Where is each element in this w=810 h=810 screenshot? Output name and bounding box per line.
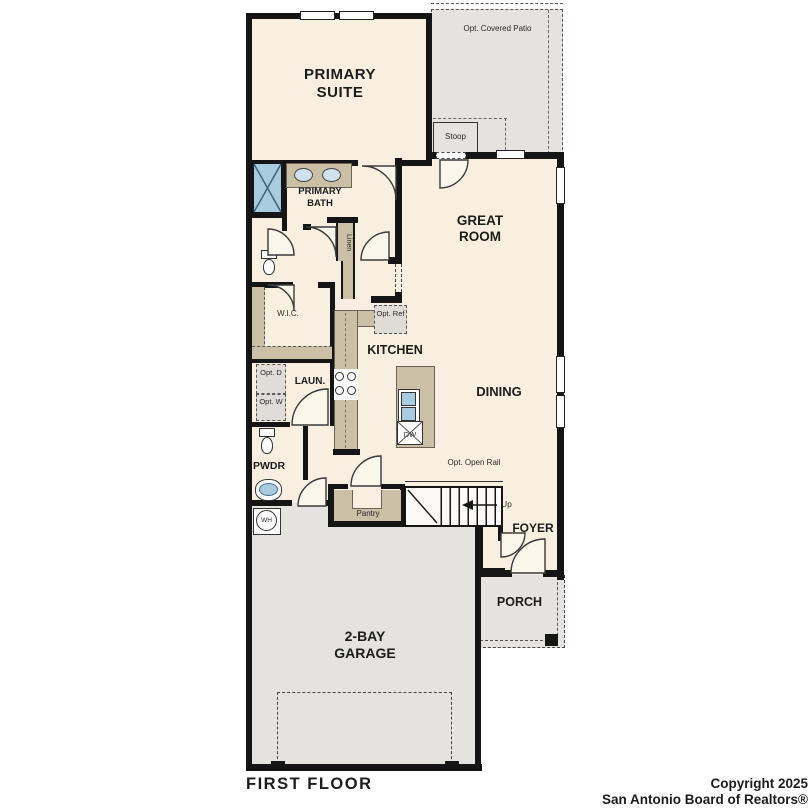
copyright-line2: San Antonio Board of Realtors® bbox=[602, 792, 808, 808]
window-suite-1 bbox=[300, 11, 335, 20]
label-primary-suite: PRIMARY SUITE bbox=[285, 66, 395, 103]
vanity-sink-icon-1 bbox=[294, 168, 313, 182]
burner-icon-2 bbox=[347, 372, 356, 381]
floor-plan: Opt. Ref DW Opt. D Opt. W WH Pantry Opt.… bbox=[0, 0, 810, 810]
patio-inner-dash bbox=[548, 10, 549, 154]
label-garage: 2-BAY GARAGE bbox=[324, 628, 406, 662]
wall-powder-right bbox=[303, 426, 308, 480]
burner-icon-3 bbox=[335, 386, 344, 395]
kitchen-counter-endcap bbox=[333, 449, 360, 455]
stoop-ext-dash-h bbox=[433, 118, 507, 119]
wall-hall-door-stub bbox=[388, 257, 396, 264]
wall-greatroom-left bbox=[395, 158, 402, 264]
wall-laundry-bottom bbox=[252, 422, 290, 427]
powder-toilet-tank-icon bbox=[259, 428, 275, 437]
patio-outer-dash bbox=[431, 3, 563, 4]
window-right-2 bbox=[556, 356, 565, 393]
cased-opening-dash bbox=[395, 264, 402, 292]
wall-pantry-top-a bbox=[328, 484, 348, 489]
label-primary-bath: PRIMARY BATH bbox=[289, 186, 351, 209]
copyright-line1: Copyright 2025 bbox=[602, 776, 808, 792]
label-kitchen: KITCHEN bbox=[360, 343, 430, 358]
wc-toilet-tank-icon bbox=[261, 250, 277, 259]
opt-open-rail-label: Opt. Open Rail bbox=[444, 458, 504, 468]
opt-dryer-label: Opt. D bbox=[257, 368, 285, 377]
water-heater-label: WH bbox=[256, 510, 277, 531]
label-laundry: LAUN. bbox=[290, 376, 330, 388]
label-linen: Linen bbox=[338, 228, 352, 258]
label-wic: W.I.C. bbox=[268, 309, 308, 319]
label-great-room: GREAT ROOM bbox=[440, 213, 520, 246]
wall-closet-left bbox=[478, 527, 483, 573]
island-sink-bowl-2 bbox=[401, 407, 416, 421]
wall-kitchen-top bbox=[371, 296, 402, 303]
wic-shelf-bottom bbox=[252, 346, 332, 359]
powder-toilet-bowl-icon bbox=[261, 437, 273, 454]
wc-toilet-bowl-icon bbox=[263, 259, 275, 275]
window-right-3 bbox=[556, 395, 565, 428]
garage-door-stub-left bbox=[271, 761, 285, 771]
wall-wc-right-stub bbox=[282, 213, 287, 231]
opt-ref-label: Opt. Ref bbox=[375, 309, 406, 318]
label-first-floor: FIRST FLOOR bbox=[246, 774, 386, 794]
staircase-landing bbox=[406, 488, 436, 525]
garage-door-dash bbox=[277, 692, 452, 764]
wall-left bbox=[246, 13, 252, 770]
burner-icon-1 bbox=[335, 372, 344, 381]
pantry-shelf-notch bbox=[352, 490, 382, 509]
stoop-door-opening bbox=[436, 152, 466, 159]
label-porch: PORCH bbox=[492, 595, 547, 610]
porch-post bbox=[545, 634, 558, 646]
burner-icon-4 bbox=[347, 386, 356, 395]
label-foyer: FOYER bbox=[509, 521, 557, 536]
garage-door-stub-right bbox=[445, 761, 459, 771]
wall-closet-right-stub bbox=[498, 527, 503, 541]
label-powder: PWDR bbox=[248, 460, 290, 473]
window-suite-2 bbox=[339, 11, 374, 20]
wall-bath-door-stub bbox=[303, 224, 311, 230]
stair-rail-line bbox=[405, 481, 503, 482]
shower-icon bbox=[252, 162, 283, 214]
window-right-1 bbox=[556, 167, 565, 204]
copyright: Copyright 2025 San Antonio Board of Real… bbox=[602, 776, 808, 807]
powder-sink-icon bbox=[259, 483, 278, 496]
wall-chase bbox=[341, 261, 355, 299]
label-stoop: Stoop bbox=[433, 132, 478, 142]
wall-front-a bbox=[478, 570, 512, 577]
label-covered-patio: Opt. Covered Patio bbox=[450, 24, 545, 34]
wall-suite-right bbox=[426, 13, 432, 166]
opt-washer-label: Opt. W bbox=[257, 397, 285, 406]
pantry-label: Pantry bbox=[342, 509, 394, 519]
vanity-sink-icon-2 bbox=[322, 168, 341, 182]
up-label: Up bbox=[501, 499, 521, 509]
wall-front-b bbox=[543, 570, 564, 577]
island-sink-bowl-1 bbox=[401, 392, 416, 406]
label-dining: DINING bbox=[470, 384, 528, 400]
dishwasher-label: DW bbox=[398, 430, 422, 439]
window-greatroom-top bbox=[496, 150, 525, 159]
